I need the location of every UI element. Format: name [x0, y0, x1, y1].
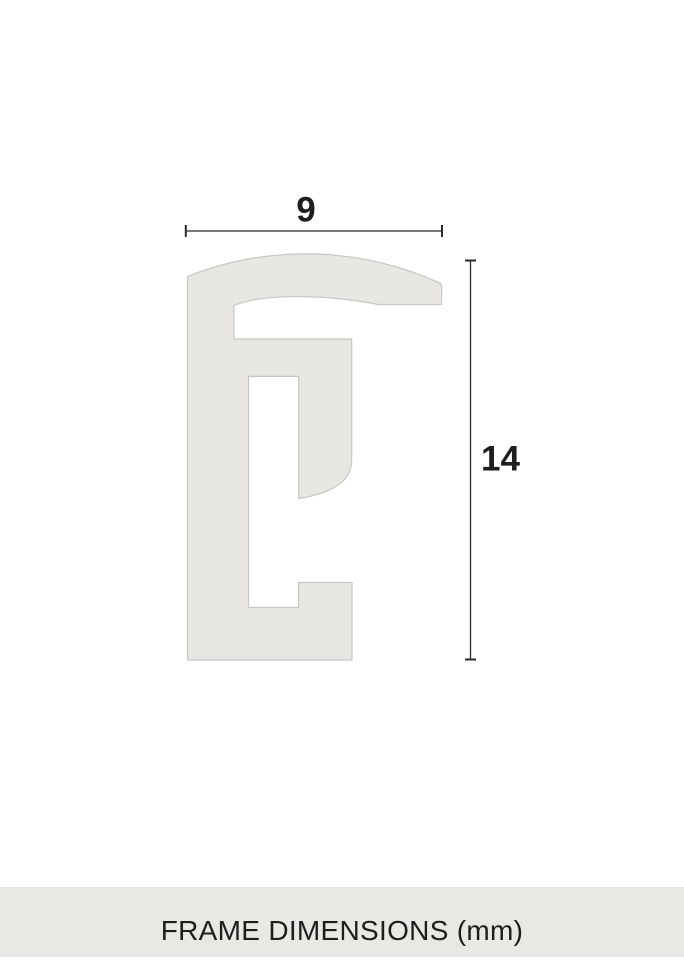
svg-text:14: 14: [481, 440, 520, 479]
svg-text:9: 9: [296, 191, 315, 230]
svg-text:FRAME DIMENSIONS (mm): FRAME DIMENSIONS (mm): [161, 915, 524, 946]
